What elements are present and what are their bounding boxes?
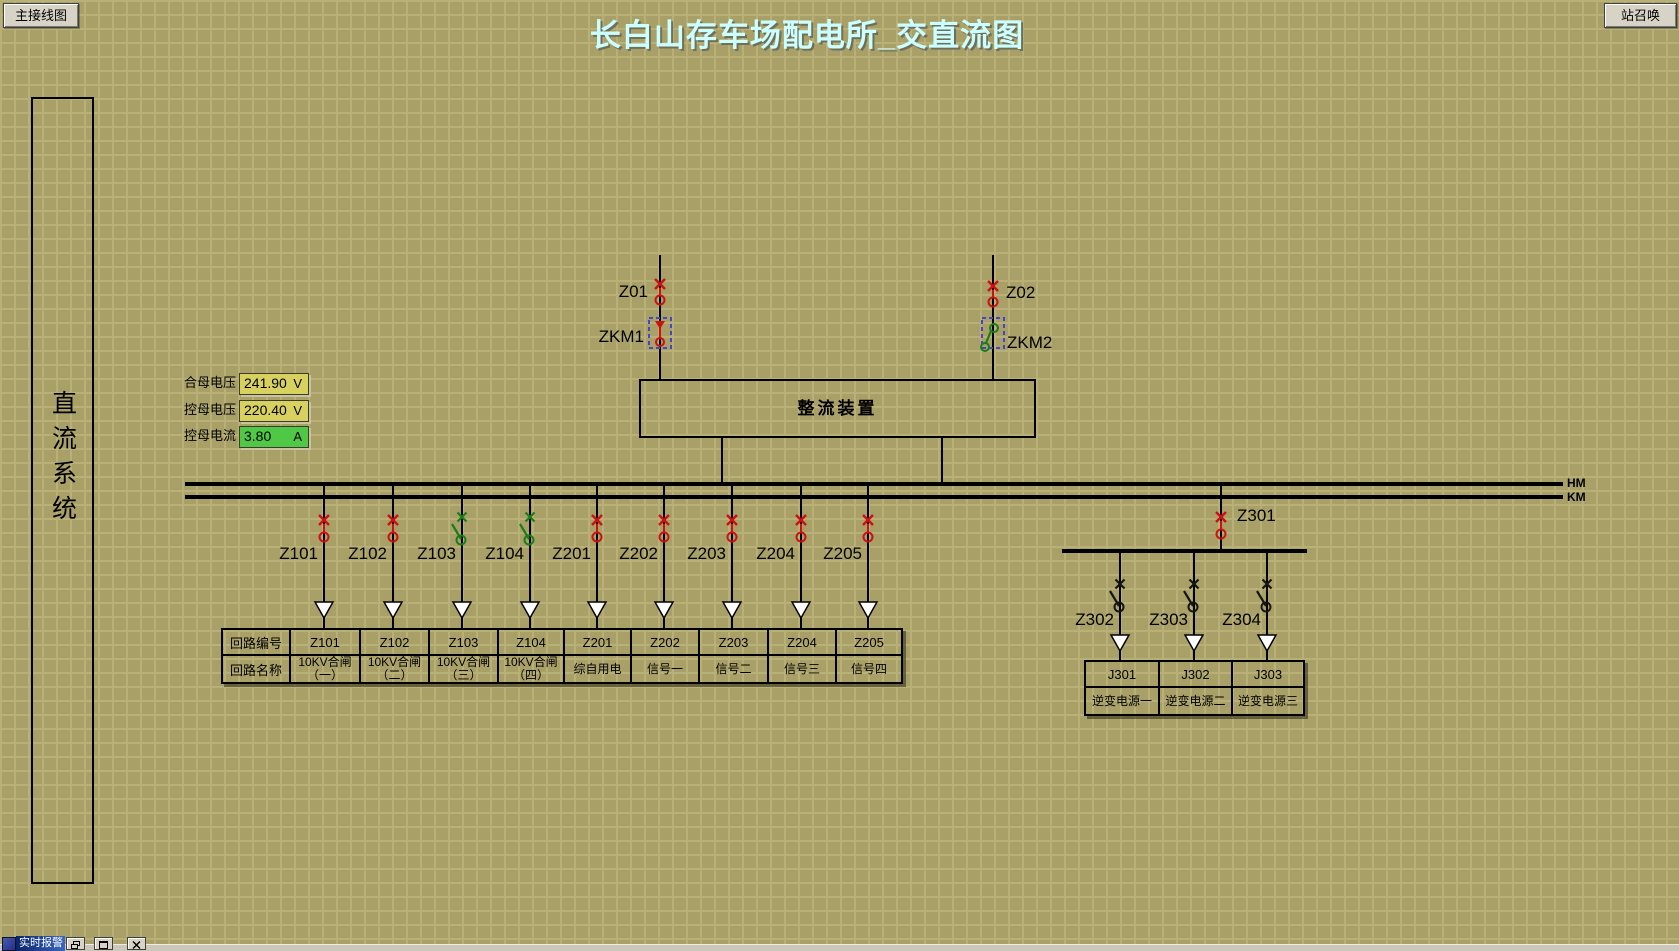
bus-label-km: KM (1567, 490, 1586, 504)
alarm-close-button[interactable] (127, 937, 146, 950)
inverter-code-J302: J302 (1159, 661, 1232, 687)
inverter-name-J301: 逆变电源一 (1085, 687, 1159, 715)
contactor-zkm2[interactable] (981, 324, 998, 351)
alarm-maximize-button[interactable] (94, 937, 113, 950)
circuit-name-Z205: 信号四 (836, 655, 902, 683)
inverter-name-J302: 逆变电源二 (1159, 687, 1232, 715)
alarm-window-title[interactable]: 实时报警 (16, 936, 65, 951)
circuit-code-Z103: Z103 (429, 629, 498, 655)
circuit-name-Z102: 10KV合闸（二） (360, 655, 429, 683)
inverter-table: J301J302J303逆变电源一逆变电源二逆变电源三 (1084, 660, 1305, 716)
row-header-name: 回路名称 (222, 655, 290, 683)
feeder-label-Z103: Z103 (402, 544, 456, 564)
source-label-z01: Z01 (598, 282, 648, 302)
circuit-table: 回路编号Z101Z102Z103Z104Z201Z202Z203Z204Z205… (221, 628, 903, 684)
feeder-label-Z104: Z104 (470, 544, 524, 564)
alarm-window-bar: 实时报警 (0, 936, 170, 951)
bus-label-hm: HM (1567, 476, 1586, 490)
feeder-Z302[interactable] (1110, 551, 1129, 660)
bottom-status-strip (0, 944, 1679, 951)
contactor-label-zkm1: ZKM1 (584, 327, 644, 347)
circuit-code-Z203: Z203 (699, 629, 768, 655)
feeder-Z304[interactable] (1257, 551, 1276, 660)
circuit-code-Z204: Z204 (768, 629, 836, 655)
source-label-z02: Z02 (1006, 283, 1035, 303)
feeder-label-Z202: Z202 (604, 544, 658, 564)
circuit-name-Z104: 10KV合闸（四） (498, 655, 564, 683)
circuit-code-Z104: Z104 (498, 629, 564, 655)
circuit-code-Z201: Z201 (564, 629, 631, 655)
maximize-icon (99, 941, 108, 949)
feeder-Z301[interactable] (1216, 482, 1226, 553)
circuit-name-Z101: 10KV合闸（一） (290, 655, 360, 683)
feeder-label-Z204: Z204 (741, 544, 795, 564)
row-header-code: 回路编号 (222, 629, 290, 655)
alarm-restore-button[interactable] (66, 937, 85, 950)
scada-canvas: 主接线图 站召唤 长白山存车场配电所_交直流图 直流系统 合母电压 241.90… (0, 0, 1679, 951)
circuit-name-Z202: 信号一 (631, 655, 699, 683)
branch-label-z301: Z301 (1237, 506, 1276, 526)
rectifier-box: 整流装置 (639, 379, 1036, 438)
circuit-code-Z102: Z102 (360, 629, 429, 655)
feeder-label-Z201: Z201 (537, 544, 591, 564)
feeder-label-Z101: Z101 (264, 544, 318, 564)
circuit-code-Z205: Z205 (836, 629, 902, 655)
feeder-label-Z304: Z304 (1207, 610, 1261, 630)
circuit-name-Z103: 10KV合闸（三） (429, 655, 498, 683)
feeder-label-Z203: Z203 (672, 544, 726, 564)
circuit-diagram (0, 0, 1679, 951)
feeder-label-Z205: Z205 (808, 544, 862, 564)
close-icon (132, 941, 141, 949)
alarm-window-icon (2, 937, 16, 951)
inverter-code-J301: J301 (1085, 661, 1159, 687)
contactor-label-zkm2: ZKM2 (1007, 333, 1052, 353)
restore-icon (71, 941, 80, 949)
feeder-label-Z102: Z102 (333, 544, 387, 564)
inverter-name-J303: 逆变电源三 (1232, 687, 1304, 715)
inverter-code-J303: J303 (1232, 661, 1304, 687)
feeder-label-Z303: Z303 (1134, 610, 1188, 630)
feeder-label-Z302: Z302 (1060, 610, 1114, 630)
circuit-name-Z203: 信号二 (699, 655, 768, 683)
circuit-code-Z202: Z202 (631, 629, 699, 655)
circuit-code-Z101: Z101 (290, 629, 360, 655)
circuit-name-Z204: 信号三 (768, 655, 836, 683)
circuit-name-Z201: 综自用电 (564, 655, 631, 683)
feeder-Z303[interactable] (1184, 551, 1203, 660)
